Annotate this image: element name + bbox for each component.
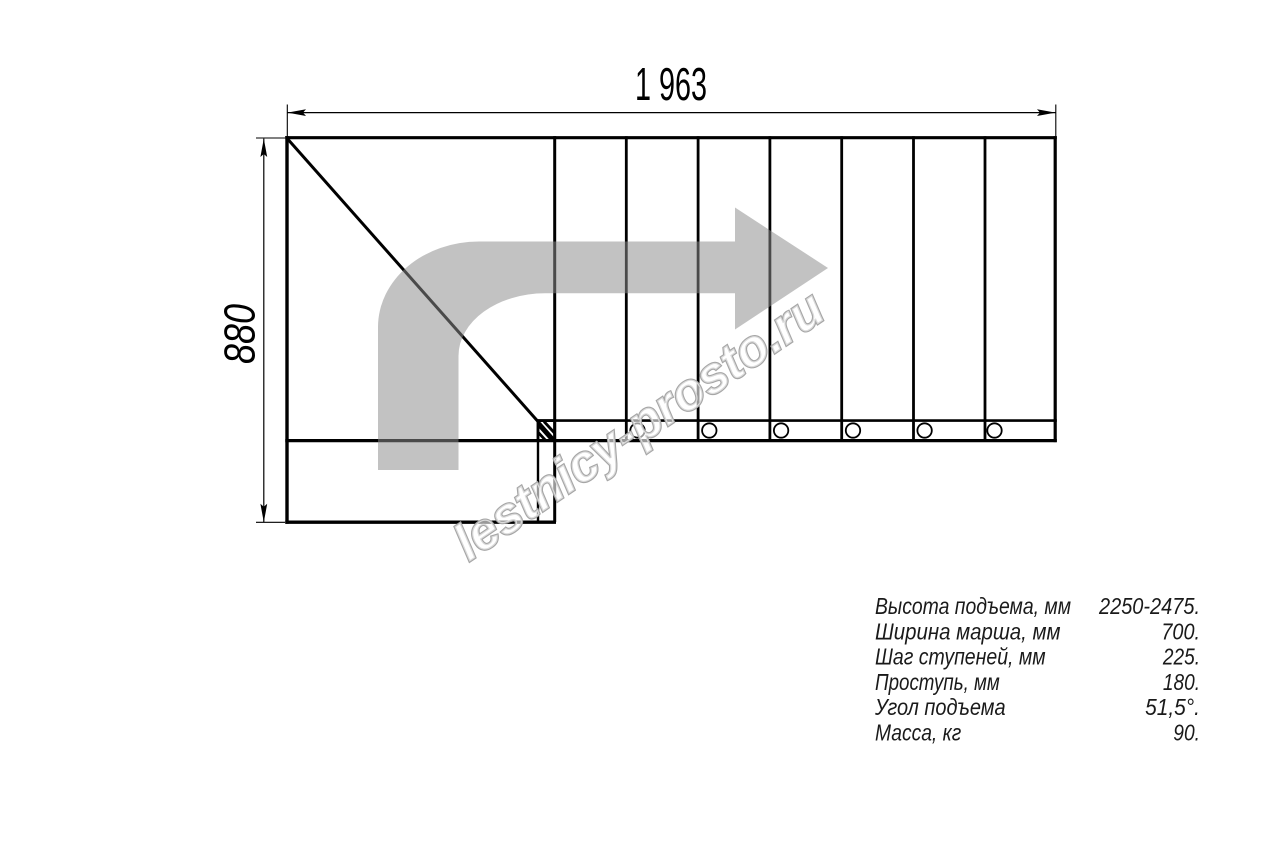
svg-text:1 963: 1 963	[635, 58, 707, 110]
svg-text:880: 880	[216, 304, 265, 364]
svg-text:225.: 225.	[1162, 644, 1200, 670]
svg-text:51,5°.: 51,5°.	[1145, 694, 1200, 720]
svg-text:Проступь, мм: Проступь, мм	[875, 669, 1000, 695]
svg-text:Угол подъема: Угол подъема	[874, 694, 1005, 720]
svg-text:Ширина марша, мм: Ширина марша, мм	[875, 618, 1061, 644]
svg-text:Шаг ступеней, мм: Шаг ступеней, мм	[875, 644, 1046, 670]
svg-text:Высота подъема, мм: Высота подъема, мм	[875, 593, 1071, 619]
svg-text:90.: 90.	[1173, 719, 1200, 745]
svg-text:Масса, кг: Масса, кг	[875, 719, 961, 745]
svg-text:2250-2475.: 2250-2475.	[1098, 593, 1200, 619]
svg-text:700.: 700.	[1161, 618, 1200, 644]
svg-text:180.: 180.	[1163, 669, 1200, 695]
